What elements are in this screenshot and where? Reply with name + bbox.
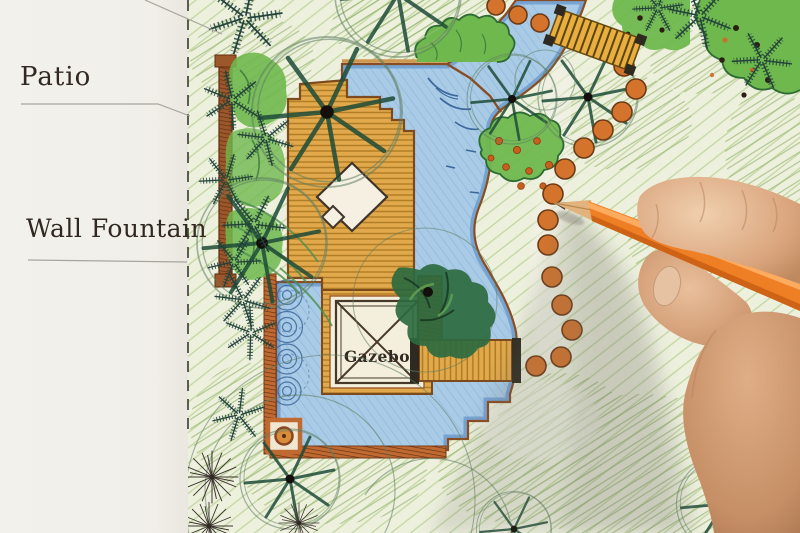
spa-jet xyxy=(268,420,300,452)
patio-label: Patio xyxy=(20,62,91,92)
wall-fountain-label: Wall Fountain xyxy=(26,214,207,243)
photo-of-landscape-plan: Gazebo xyxy=(0,0,800,533)
spiky-plant xyxy=(186,451,239,504)
plan-drawing: Gazebo xyxy=(0,0,800,533)
